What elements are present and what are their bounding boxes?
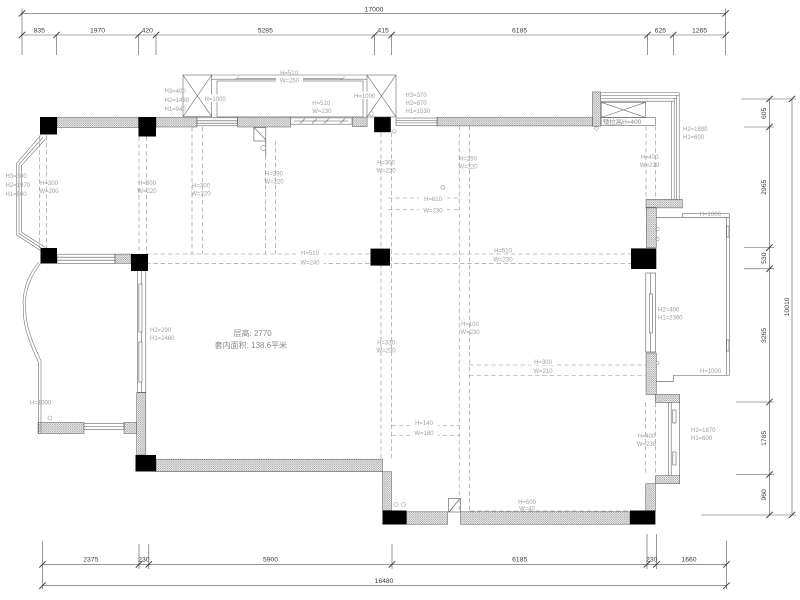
svg-text:H1=2460: H1=2460: [150, 336, 175, 342]
svg-text:H2=290: H2=290: [150, 328, 172, 334]
svg-text:W=230: W=230: [312, 109, 332, 115]
svg-text:H1=600: H1=600: [683, 135, 705, 141]
svg-text:605: 605: [761, 107, 768, 119]
svg-text:W=200: W=200: [39, 189, 59, 195]
svg-text:H3=400: H3=400: [165, 89, 187, 95]
svg-text:H=300: H=300: [138, 181, 157, 187]
svg-text:H=510: H=510: [301, 251, 320, 257]
svg-text:H=290: H=290: [265, 172, 284, 178]
svg-text:1970: 1970: [90, 27, 105, 34]
svg-text:2375: 2375: [83, 557, 98, 564]
svg-text:H=250: H=250: [459, 157, 478, 163]
svg-text:H=300: H=300: [377, 161, 396, 167]
svg-text:2965: 2965: [761, 180, 768, 195]
svg-text:W=220: W=220: [376, 169, 396, 175]
svg-text:H=510: H=510: [280, 71, 299, 77]
svg-text:415: 415: [377, 27, 389, 34]
svg-text:H1=2360: H1=2360: [658, 316, 683, 322]
svg-text:层高: 2770: 层高: 2770: [234, 328, 273, 338]
svg-text:230: 230: [646, 557, 658, 564]
svg-text:H3=300: H3=300: [6, 174, 28, 180]
svg-text:H=1000: H=1000: [354, 94, 376, 100]
svg-text:套内面积: 138.6平米: 套内面积: 138.6平米: [215, 340, 287, 350]
svg-text:H=300: H=300: [534, 360, 553, 366]
svg-text:W=240: W=240: [300, 261, 320, 267]
svg-text:1265: 1265: [692, 27, 707, 34]
svg-text:W=220: W=220: [264, 180, 284, 186]
svg-text:5285: 5285: [258, 27, 273, 34]
svg-text:H1=1530: H1=1530: [406, 109, 431, 115]
svg-text:H2=1870: H2=1870: [691, 428, 716, 434]
svg-text:H=300: H=300: [40, 181, 59, 187]
svg-text:H2=870: H2=870: [406, 101, 428, 107]
svg-text:H3=370: H3=370: [406, 93, 428, 99]
svg-text:H=140: H=140: [415, 421, 434, 427]
svg-text:H=400: H=400: [638, 434, 657, 440]
svg-text:W=210: W=210: [533, 369, 553, 375]
svg-text:W=220: W=220: [137, 189, 157, 195]
svg-text:17000: 17000: [365, 7, 384, 14]
svg-text:H=1000: H=1000: [700, 212, 722, 218]
svg-text:H=1000: H=1000: [30, 401, 52, 407]
svg-text:420: 420: [142, 27, 154, 34]
svg-text:W=220: W=220: [458, 165, 478, 171]
svg-text:W=230: W=230: [376, 349, 396, 355]
svg-text:W=230: W=230: [640, 163, 660, 169]
svg-text:10010: 10010: [784, 297, 791, 316]
svg-text:W=230: W=230: [637, 442, 657, 448]
svg-text:H=500: H=500: [518, 500, 537, 506]
svg-text:矮拉高H=400: 矮拉高H=400: [603, 117, 642, 126]
svg-text:6185: 6185: [512, 557, 527, 564]
svg-text:H2=1880: H2=1880: [683, 127, 708, 133]
svg-text:960: 960: [761, 489, 768, 501]
svg-text:H=100: H=100: [461, 322, 480, 328]
svg-text:H1=940: H1=940: [165, 107, 187, 113]
svg-text:3265: 3265: [761, 328, 768, 343]
svg-text:W=230: W=230: [423, 209, 443, 215]
svg-text:W=40: W=40: [519, 507, 536, 513]
svg-text:W=250: W=250: [280, 79, 300, 85]
svg-text:625: 625: [655, 27, 667, 34]
svg-text:1660: 1660: [681, 557, 696, 564]
svg-text:H1=600: H1=600: [691, 436, 713, 442]
svg-text:530: 530: [761, 252, 768, 264]
svg-text:H2=1460: H2=1460: [165, 98, 190, 104]
svg-text:H2=1970: H2=1970: [6, 183, 31, 189]
svg-text:16480: 16480: [375, 578, 394, 585]
svg-text:1785: 1785: [761, 431, 768, 446]
svg-text:W=180: W=180: [414, 431, 434, 437]
svg-text:5900: 5900: [263, 557, 278, 564]
svg-text:H=1000: H=1000: [205, 97, 227, 103]
svg-text:W=220: W=220: [191, 192, 211, 198]
svg-text:H1=500: H1=500: [6, 192, 28, 198]
svg-text:230: 230: [138, 557, 150, 564]
svg-text:H=400: H=400: [641, 155, 660, 161]
svg-text:H=300: H=300: [192, 184, 211, 190]
svg-text:H=1000: H=1000: [700, 369, 722, 375]
svg-text:H2=400: H2=400: [658, 308, 680, 314]
svg-text:H=330: H=330: [377, 341, 396, 347]
svg-text:835: 835: [34, 27, 46, 34]
svg-text:H=510: H=510: [312, 101, 331, 107]
svg-text:H=610: H=610: [424, 197, 443, 203]
svg-text:W=230: W=230: [493, 258, 513, 264]
svg-text:H=510: H=510: [494, 249, 513, 255]
svg-text:6185: 6185: [512, 27, 527, 34]
svg-text:W=230: W=230: [460, 330, 480, 336]
